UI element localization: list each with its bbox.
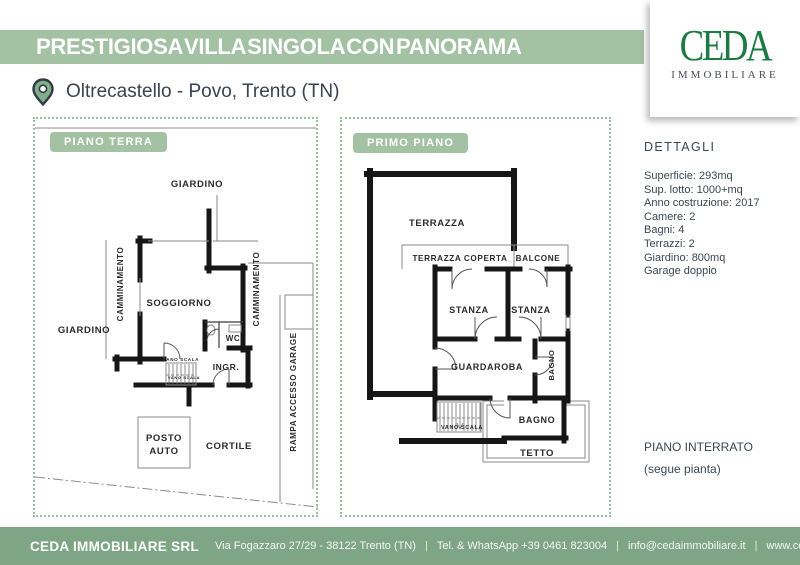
detail-garage: Garage doppio (644, 265, 796, 279)
room-labels: GIARDINO CAMMINAMENTO SOGGIORNO GIARDINO… (58, 179, 298, 457)
label-giardino-top: GIARDINO (171, 179, 223, 190)
label-stanza-1: STANZA (449, 305, 488, 315)
label-terrazza-coperta: TERRAZZA COPERTA (412, 254, 507, 263)
label-bagno-piccolo: BAGNO (547, 350, 556, 381)
location-text: Oltrecastello - Povo, Trento (TN) (66, 81, 339, 103)
label-soggiorno: SOGGIORNO (146, 298, 211, 309)
details-heading: DETTAGLI (644, 140, 796, 154)
label-stanza-2: STANZA (511, 305, 550, 315)
detail-anno: Anno costruzione: 2017 (644, 197, 796, 211)
detail-superficie: Superficie: 293mq (644, 170, 796, 184)
logo-subtitle: IMMOBILIARE (671, 69, 779, 81)
label-camminamento-left: CAMMINAMENTO (116, 247, 125, 322)
detail-terrazzi: Terrazzi: 2 (644, 238, 796, 252)
label-ingresso: INGR. (213, 362, 240, 372)
footer-separator: | (755, 540, 758, 552)
label-camminamento-right: CAMMINAMENTO (252, 252, 261, 327)
label-tetto: TETTO (520, 448, 554, 459)
label-vano-scala-2: VANO SCALA (168, 375, 200, 380)
label-vano-scala: VANO SCALA (163, 357, 199, 362)
agency-logo: CEDA IMMOBILIARE (650, 0, 800, 117)
details-panel: DETTAGLI Superficie: 293mq Sup. lotto: 1… (644, 140, 796, 279)
room-labels: TERRAZZA TERRAZZA COPERTA BALCONE STANZA… (409, 218, 560, 459)
basement-note-line1: PIANO INTERRATO (644, 436, 753, 458)
basement-note-line2: (segue pianta) (644, 458, 753, 480)
label-rampa: RAMPA ACCESSO GARAGE (289, 332, 298, 451)
detail-camere: Camere: 2 (644, 211, 796, 225)
detail-sup-lotto: Sup. lotto: 1000+mq (644, 184, 796, 198)
footer-separator: | (616, 540, 619, 552)
label-vano-scala: VANO SCALA (441, 425, 483, 431)
ground-floor-plan: GIARDINO CAMMINAMENTO SOGGIORNO GIARDINO… (33, 117, 318, 517)
page-title: PRESTIGIOSA VILLA SINGOLA CON PANORAMA (0, 34, 522, 60)
label-terrazza: TERRAZZA (409, 218, 465, 229)
footer-company: CEDA IMMOBILIARE SRL (30, 539, 199, 554)
footer-website: www.cedaimmobiliare.it (766, 540, 800, 552)
label-cortile: CORTILE (206, 441, 252, 452)
map-pin-icon (32, 78, 54, 106)
logo-wordmark: CEDA (680, 26, 771, 66)
basement-note: PIANO INTERRATO (segue pianta) (644, 436, 753, 480)
label-giardino-left: GIARDINO (58, 325, 110, 336)
footer-email: info@cedaimmobiliare.it (628, 540, 746, 552)
location-row: Oltrecastello - Povo, Trento (TN) (32, 78, 339, 106)
label-balcone: BALCONE (516, 254, 561, 263)
footer-contact-info: Via Fogazzaro 27/29 - 38122 Trento (TN) … (215, 540, 800, 552)
flyer-page: PRESTIGIOSA VILLA SINGOLA CON PANORAMA C… (0, 0, 800, 565)
label-posto-auto-1: POSTO (146, 433, 182, 444)
label-bagno: BAGNO (519, 415, 556, 425)
first-floor-badge: PRIMO PIANO (353, 133, 468, 153)
detail-giardino: Giardino: 800mq (644, 252, 796, 266)
stairs (166, 363, 196, 385)
title-banner: PRESTIGIOSA VILLA SINGOLA CON PANORAMA (0, 30, 644, 64)
label-guardaroba: GUARDAROBA (451, 362, 523, 372)
footer-bar: CEDA IMMOBILIARE SRL Via Fogazzaro 27/29… (0, 527, 800, 565)
first-floor-plan: TERRAZZA TERRAZZA COPERTA BALCONE STANZA… (340, 117, 611, 517)
label-posto-auto-2: AUTO (149, 446, 178, 457)
detail-bagni: Bagni: 4 (644, 224, 796, 238)
footer-address: Via Fogazzaro 27/29 - 38122 Trento (TN) (215, 540, 416, 552)
footer-phone: Tel. & WhatsApp +39 0461 823004 (437, 540, 607, 552)
label-wc: WC (226, 334, 241, 343)
ground-floor-badge: PIANO TERRA (50, 132, 167, 152)
footer-separator: | (425, 540, 428, 552)
